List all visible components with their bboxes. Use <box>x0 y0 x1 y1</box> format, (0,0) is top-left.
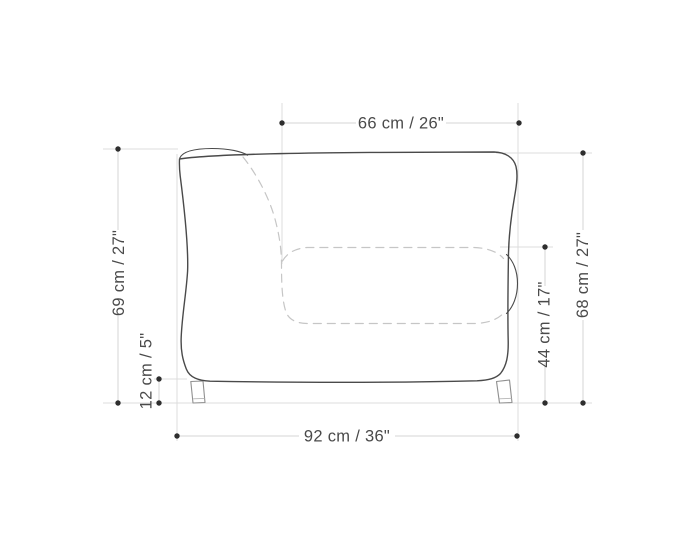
dot-top-left <box>279 120 284 125</box>
dim-label-bottom: 92 cm / 36" <box>304 428 390 446</box>
dim-label-left-inner: 12 cm / 5" <box>138 333 156 410</box>
dimension-diagram: 66 cm / 26" 92 cm / 36" 69 cm / 27" 12 c… <box>0 0 700 560</box>
right-leg-foot-line <box>499 398 511 399</box>
left-leg <box>191 381 205 403</box>
dot-right-inner-bottom <box>542 400 547 405</box>
dot-right-outer-top <box>580 150 585 155</box>
dot-left-outer-bottom <box>115 400 120 405</box>
dimension-dots <box>115 120 585 438</box>
armchair-outline <box>179 152 517 382</box>
dot-left-inner-top <box>156 376 161 381</box>
armchair-body <box>179 149 517 383</box>
dim-label-right-outer: 68 cm / 27" <box>574 232 592 318</box>
extension-lines <box>103 103 592 441</box>
dimension-lines <box>118 123 583 436</box>
dimension-labels: 66 cm / 26" 92 cm / 36" 69 cm / 27" 12 c… <box>110 115 592 446</box>
dot-left-outer-top <box>115 146 120 151</box>
dot-right-inner-top <box>542 244 547 249</box>
dim-label-left-outer: 69 cm / 27" <box>110 230 128 316</box>
dot-bottom-right <box>514 433 519 438</box>
dot-right-outer-bottom <box>580 400 585 405</box>
seat-cushion-top-dashed-line <box>283 248 504 262</box>
dot-bottom-left <box>174 433 179 438</box>
armchair-dimension-drawing: 66 cm / 26" 92 cm / 36" 69 cm / 27" 12 c… <box>0 0 700 560</box>
dim-label-top: 66 cm / 26" <box>358 115 444 133</box>
dim-label-right-inner: 44 cm / 17" <box>536 281 554 367</box>
dot-top-right <box>516 120 521 125</box>
legs <box>191 380 512 403</box>
right-leg <box>497 380 513 403</box>
dot-left-inner-bottom <box>156 400 161 405</box>
